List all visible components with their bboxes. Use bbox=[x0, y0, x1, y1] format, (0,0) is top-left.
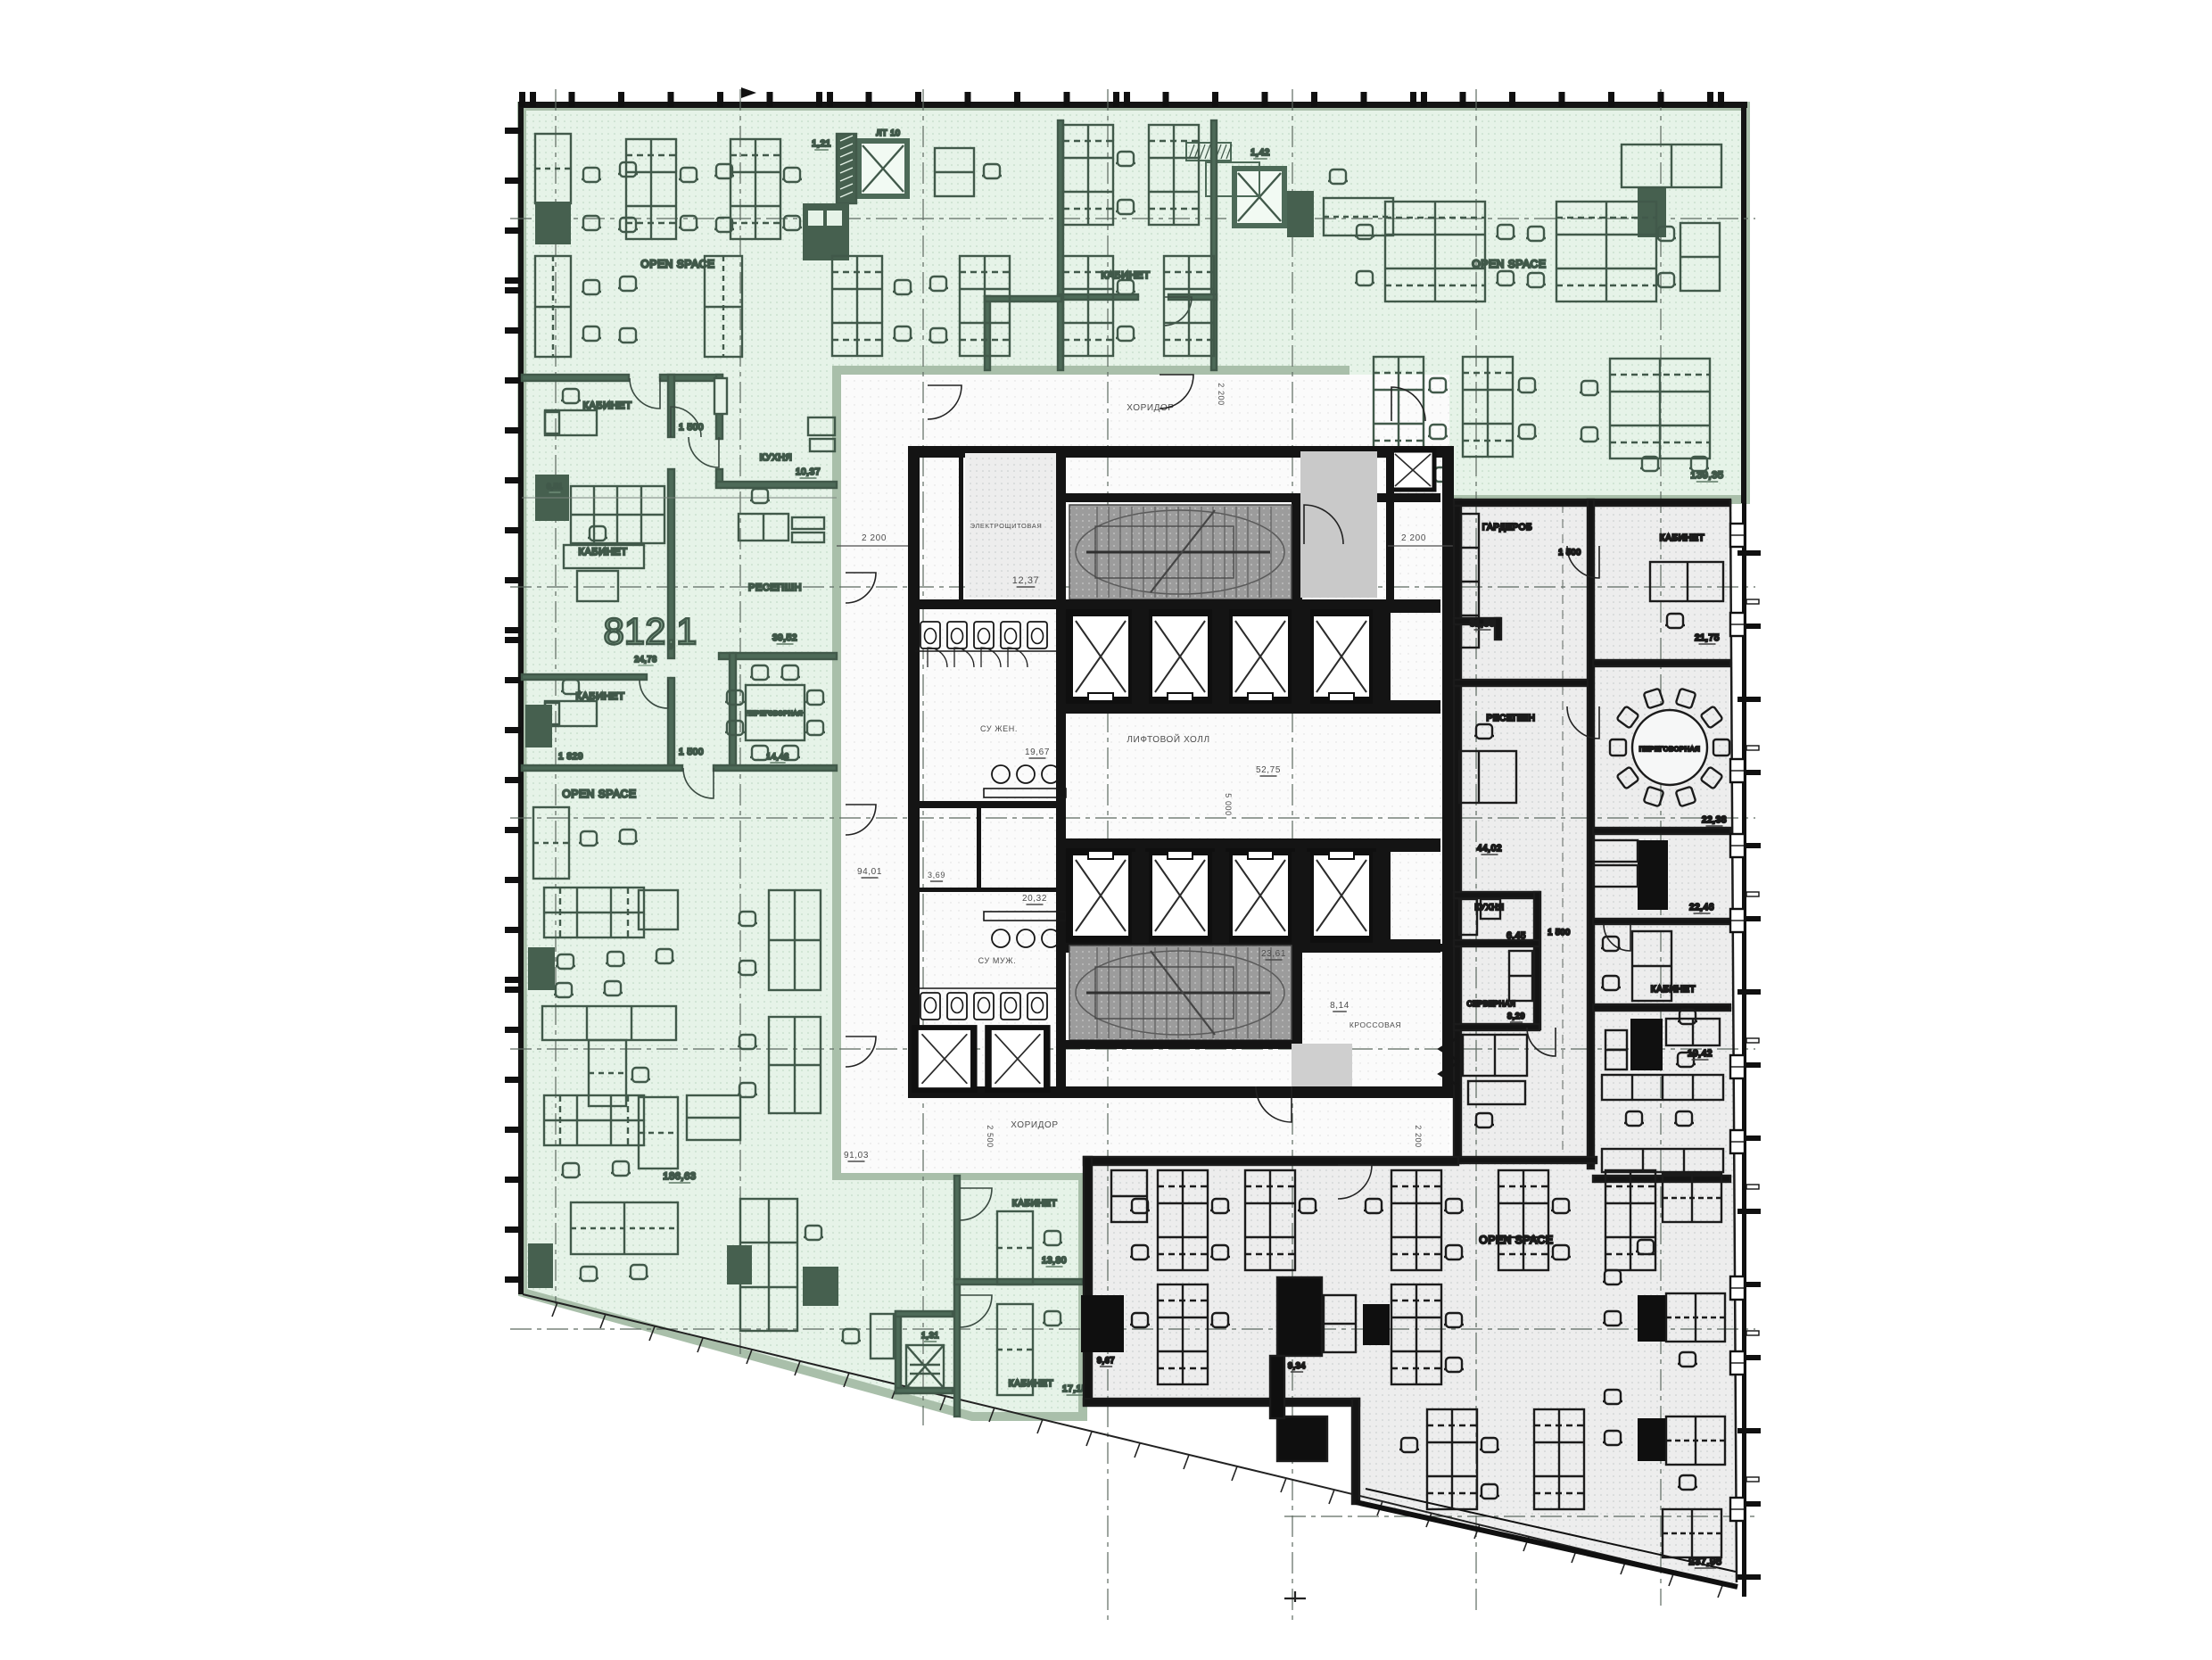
svg-text:1,31: 1,31 bbox=[921, 1331, 939, 1340]
svg-text:21,75: 21,75 bbox=[1695, 633, 1720, 643]
svg-text:12,37: 12,37 bbox=[1012, 575, 1040, 586]
svg-text:СУ ЖЕН.: СУ ЖЕН. bbox=[980, 724, 1018, 733]
svg-text:КАБИНЕТ: КАБИНЕТ bbox=[1651, 985, 1696, 995]
svg-text:19,67: 19,67 bbox=[1025, 747, 1050, 757]
svg-text:КАБИНЕТ: КАБИНЕТ bbox=[578, 547, 627, 557]
svg-text:31,58: 31,58 bbox=[1470, 619, 1495, 629]
svg-text:КАБИНЕТ: КАБИНЕТ bbox=[1009, 1379, 1053, 1389]
svg-text:52,75: 52,75 bbox=[1256, 765, 1281, 775]
svg-text:КРОССОВАЯ: КРОССОВАЯ bbox=[1349, 1020, 1401, 1029]
svg-text:ГАРДЕРОБ: ГАРДЕРОБ bbox=[1482, 523, 1532, 533]
svg-text:139,35: 139,35 bbox=[1690, 470, 1723, 481]
svg-text:РЕСЕПШН: РЕСЕПШН bbox=[1486, 714, 1535, 723]
svg-text:8,29: 8,29 bbox=[1507, 1012, 1525, 1020]
svg-text:22,38: 22,38 bbox=[1702, 815, 1727, 825]
svg-text:9,67: 9,67 bbox=[1097, 1356, 1115, 1365]
svg-text:19,42: 19,42 bbox=[1688, 1049, 1713, 1059]
svg-text:1,42: 1,42 bbox=[1250, 148, 1270, 158]
svg-text:2 200: 2 200 bbox=[1414, 1125, 1423, 1148]
svg-text:ЛИФТОВОЙ ХОЛЛ: ЛИФТОВОЙ ХОЛЛ bbox=[1127, 733, 1209, 745]
svg-text:186,63: 186,63 bbox=[663, 1171, 696, 1182]
svg-text:94,01: 94,01 bbox=[857, 867, 882, 877]
svg-text:812,1: 812,1 bbox=[603, 610, 697, 652]
svg-text:1 500: 1 500 bbox=[679, 423, 704, 433]
svg-text:СУ МУЖ.: СУ МУЖ. bbox=[978, 956, 1017, 965]
svg-text:КАБИНЕТ: КАБИНЕТ bbox=[1660, 533, 1704, 543]
svg-text:OPEN SPACE: OPEN SPACE bbox=[562, 788, 636, 800]
svg-text:2 500: 2 500 bbox=[986, 1125, 995, 1148]
svg-text:20,32: 20,32 bbox=[1022, 894, 1047, 904]
svg-text:2 200: 2 200 bbox=[1401, 533, 1426, 543]
svg-text:ПЕРЕГОВОРНАЯ: ПЕРЕГОВОРНАЯ bbox=[746, 711, 803, 717]
svg-text:39,52: 39,52 bbox=[772, 633, 797, 643]
svg-text:2 200: 2 200 bbox=[862, 533, 887, 543]
svg-text:ПЕРЕГОВОРНАЯ: ПЕРЕГОВОРНАЯ bbox=[1639, 745, 1701, 753]
svg-text:0,51: 0,51 bbox=[547, 483, 563, 491]
svg-text:КАБИНЕТ: КАБИНЕТ bbox=[1012, 1199, 1057, 1209]
svg-text:OPEN SPACE: OPEN SPACE bbox=[1479, 1234, 1553, 1246]
svg-text:СЕРВЕРНАЯ: СЕРВЕРНАЯ bbox=[1467, 1000, 1516, 1008]
svg-text:ХОРИДОР: ХОРИДОР bbox=[1011, 1120, 1058, 1130]
svg-text:РЕСЕПШН: РЕСЕПШН bbox=[748, 582, 802, 593]
svg-text:OPEN SPACE: OPEN SPACE bbox=[640, 258, 714, 270]
svg-text:1 500: 1 500 bbox=[1548, 928, 1571, 937]
svg-text:22,46: 22,46 bbox=[1689, 903, 1714, 913]
svg-text:2 200: 2 200 bbox=[1217, 383, 1226, 406]
svg-text:23,61: 23,61 bbox=[1261, 949, 1286, 959]
svg-text:1 500: 1 500 bbox=[679, 747, 704, 757]
svg-text:ЭЛЕКТРОЩИТОВАЯ: ЭЛЕКТРОЩИТОВАЯ bbox=[970, 522, 1043, 530]
svg-text:44,02: 44,02 bbox=[1477, 844, 1502, 854]
svg-text:КАБИНЕТ: КАБИНЕТ bbox=[1101, 270, 1150, 281]
svg-text:1 829: 1 829 bbox=[558, 752, 583, 762]
svg-text:13,80: 13,80 bbox=[1042, 1256, 1067, 1266]
svg-text:1 500: 1 500 bbox=[1558, 548, 1581, 557]
svg-text:КУХНЯ: КУХНЯ bbox=[1474, 903, 1504, 912]
svg-text:1,21: 1,21 bbox=[812, 139, 831, 149]
svg-text:3,69: 3,69 bbox=[928, 871, 945, 880]
svg-text:91,03: 91,03 bbox=[844, 1151, 869, 1160]
svg-text:ЛТ 10: ЛТ 10 bbox=[877, 128, 901, 137]
svg-text:OPEN SPACE: OPEN SPACE bbox=[1472, 258, 1546, 270]
svg-text:24,78: 24,78 bbox=[634, 655, 657, 664]
svg-text:8,14: 8,14 bbox=[1330, 1001, 1349, 1011]
svg-text:КУХНЯ: КУХНЯ bbox=[760, 453, 792, 463]
svg-text:14,46: 14,46 bbox=[766, 752, 789, 761]
svg-text:10,37: 10,37 bbox=[796, 467, 821, 477]
svg-text:9,34: 9,34 bbox=[1288, 1361, 1306, 1370]
svg-text:5 000: 5 000 bbox=[1224, 793, 1233, 816]
